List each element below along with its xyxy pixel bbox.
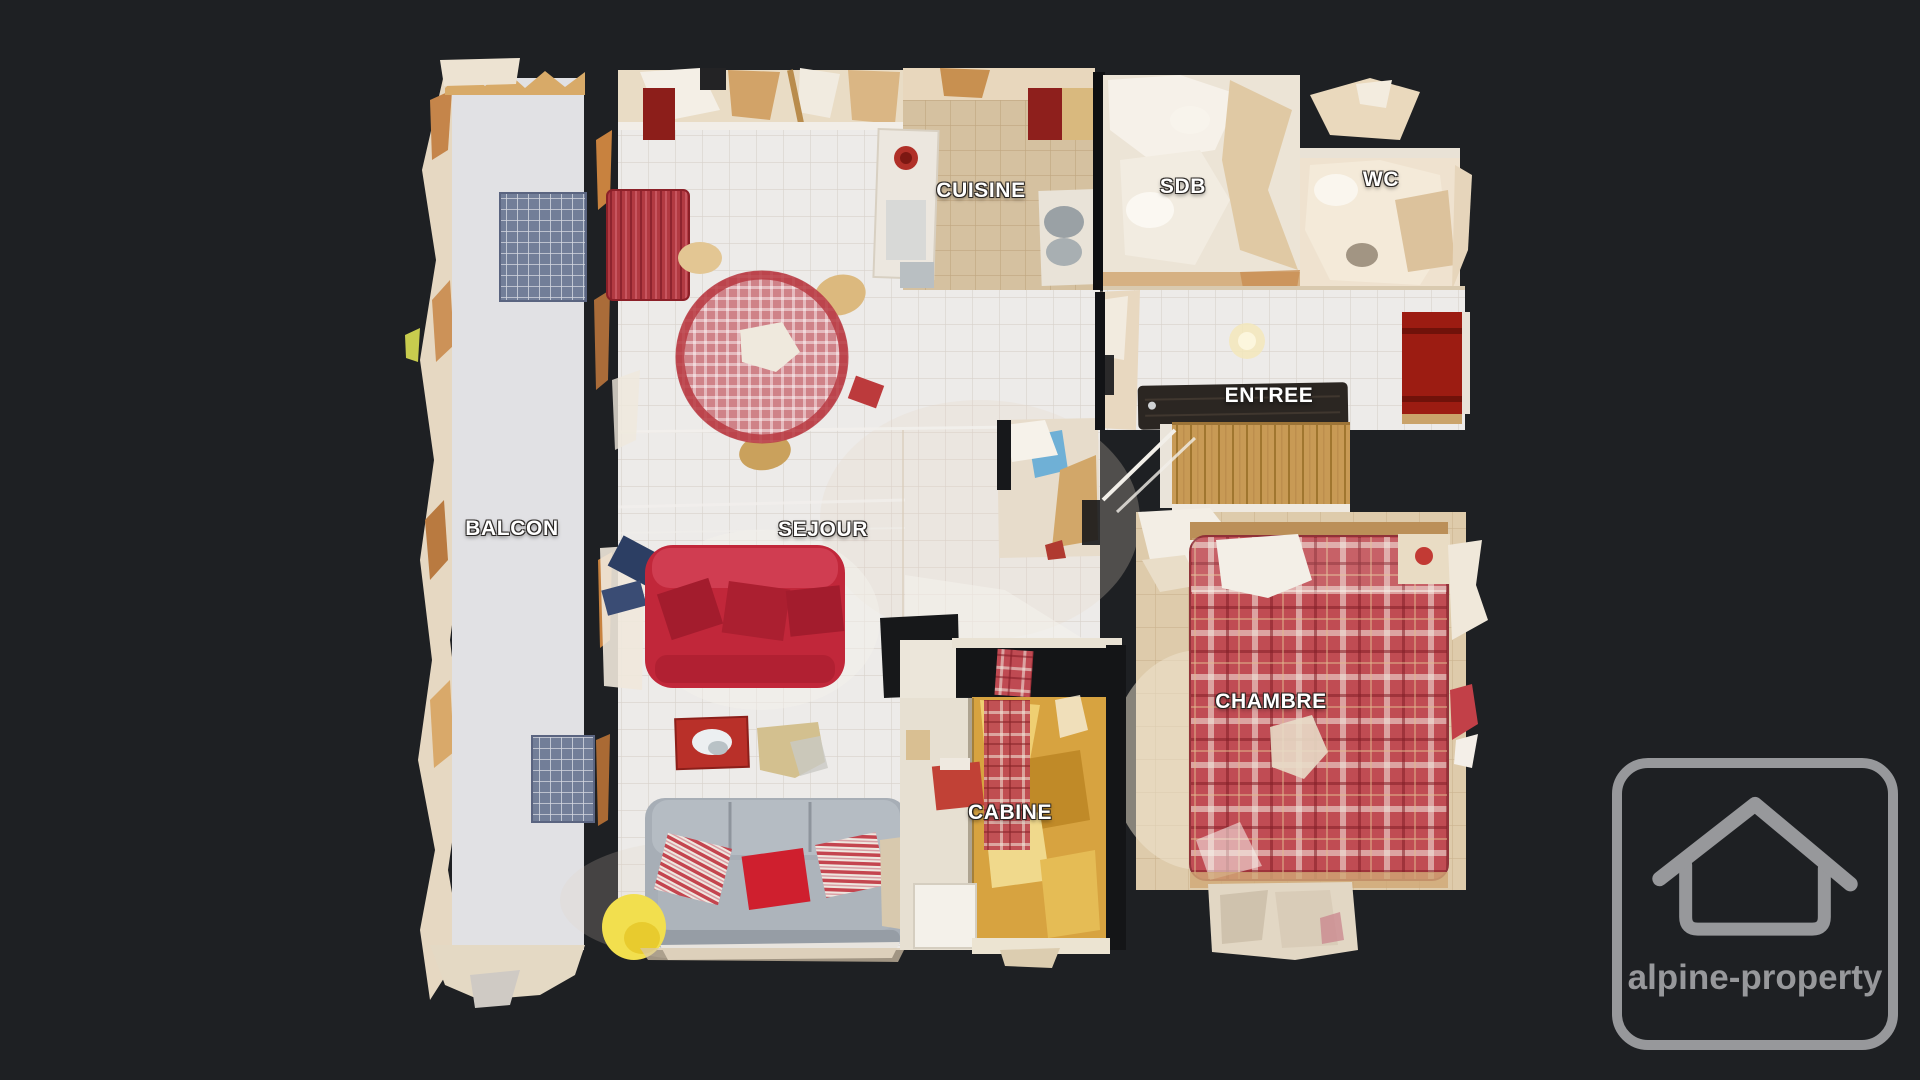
house-icon bbox=[1651, 792, 1859, 944]
room-label-cabine: CABINE bbox=[968, 801, 1052, 825]
front-door bbox=[1402, 312, 1470, 424]
bunk-bed-plaid bbox=[984, 700, 1030, 850]
room-label-chambre: CHAMBRE bbox=[1215, 690, 1327, 714]
room-label-sejour: SEJOUR bbox=[778, 518, 868, 542]
brand-name: alpine-property bbox=[1628, 958, 1883, 998]
kitchen-cabinet-red bbox=[1028, 88, 1066, 140]
agency-watermark: alpine-property bbox=[1612, 758, 1898, 1050]
balcony-bottom-shard bbox=[470, 970, 520, 1008]
red-striped-rug bbox=[607, 190, 689, 300]
gray-sofa bbox=[602, 798, 910, 960]
sofa-pillow bbox=[786, 585, 845, 636]
entry-closet bbox=[997, 418, 1100, 560]
kitchen-appliance bbox=[900, 262, 934, 288]
red-pillow bbox=[742, 848, 811, 910]
balcony-top-shard bbox=[440, 58, 520, 86]
sofa-pillow bbox=[722, 581, 791, 641]
room-label-wc: WC bbox=[1363, 168, 1399, 192]
parquet-floor bbox=[1172, 424, 1350, 508]
red-sofa bbox=[600, 535, 845, 690]
toilet-fragment bbox=[1346, 243, 1378, 267]
sink-fragment bbox=[1170, 106, 1210, 134]
room-label-cuisine: CUISINE bbox=[936, 179, 1025, 203]
dining-chair bbox=[678, 242, 722, 274]
bedroom-bench bbox=[1208, 882, 1358, 960]
bedroom bbox=[1110, 508, 1488, 960]
balcony-doormat-bottom bbox=[532, 736, 594, 822]
balcony-doormat-top bbox=[500, 193, 586, 301]
red-bench bbox=[643, 88, 675, 140]
viewer-stage: BALCON SEJOUR CUISINE SDB WC ENTREE CHAM… bbox=[0, 0, 1920, 1080]
storage-bin bbox=[914, 884, 976, 948]
kitchen-counter-right bbox=[1038, 189, 1099, 286]
balcony-shard bbox=[405, 328, 420, 362]
room-label-entree: ENTREE bbox=[1225, 384, 1314, 408]
room-label-balcon: BALCON bbox=[465, 517, 558, 541]
room-label-sdb: SDB bbox=[1160, 175, 1206, 199]
kitchen-sink bbox=[1044, 206, 1084, 238]
